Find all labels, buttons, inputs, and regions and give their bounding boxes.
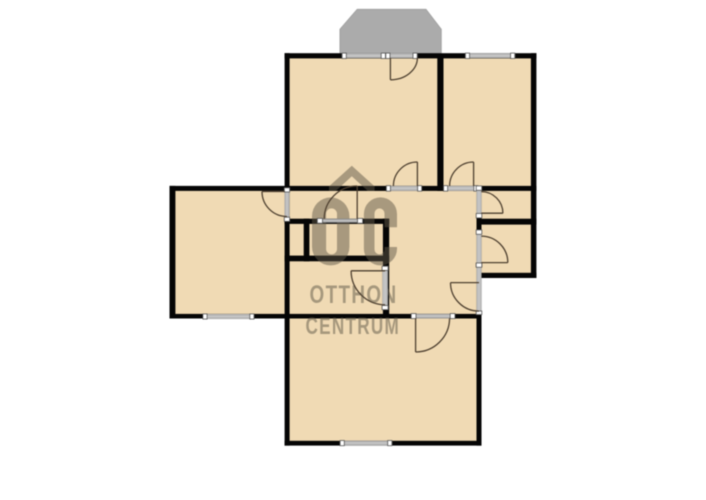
- svg-text:CENTRUM: CENTRUM: [306, 313, 401, 340]
